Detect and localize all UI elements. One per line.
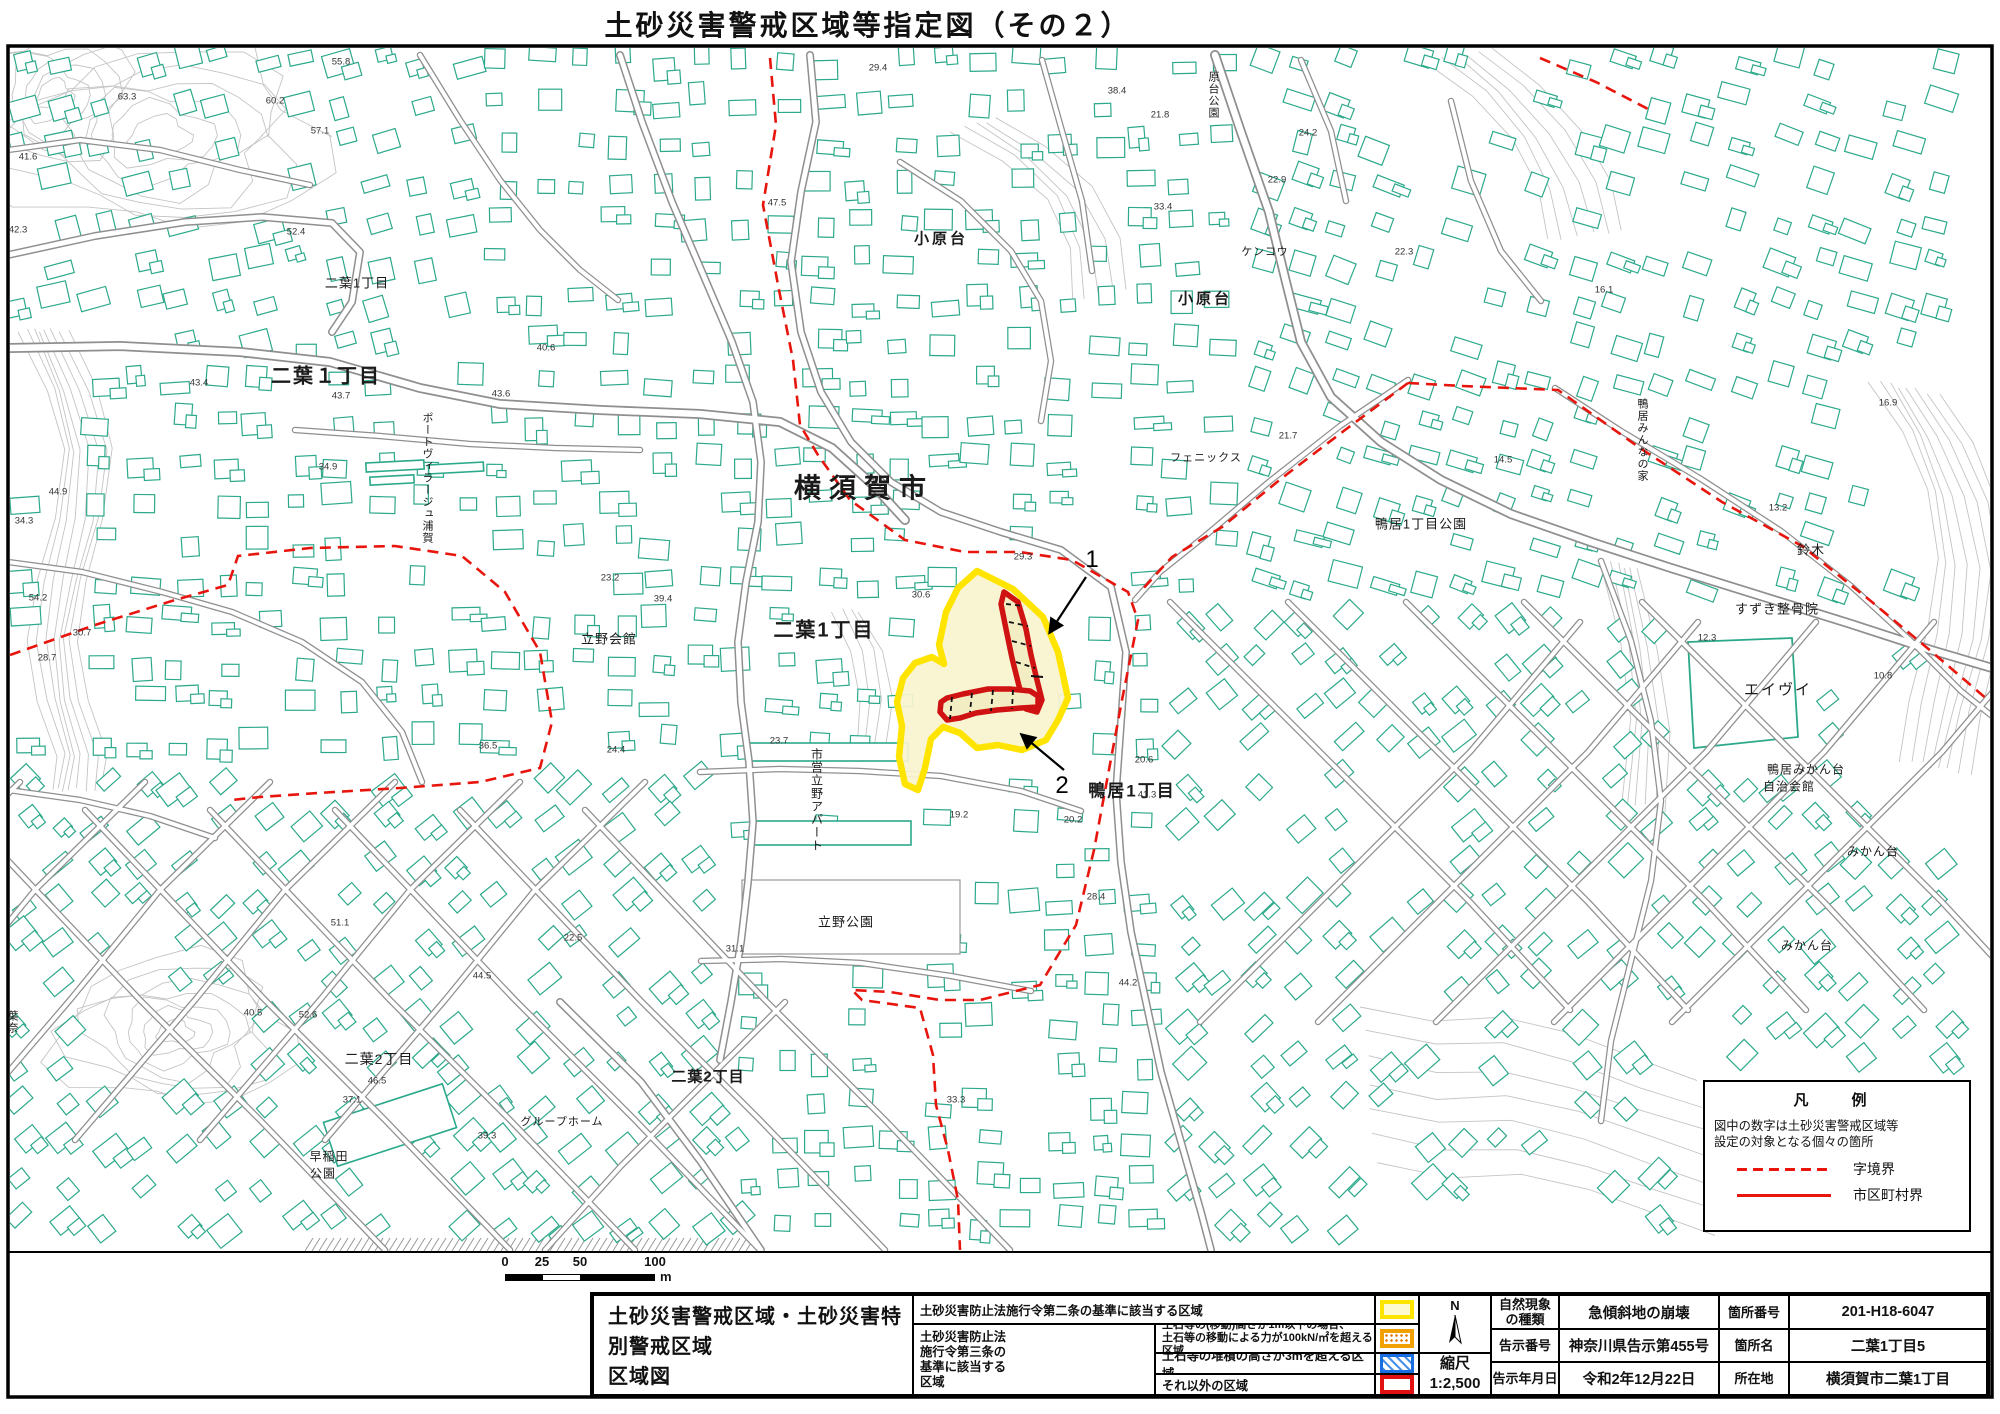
info-label-phenomenon: 自然現象 の種類: [1491, 1295, 1559, 1329]
legend-row2-desc: 土石等の(移動)高さが1m以下の場合、 土石等の移動による力が100kN/㎡を超…: [1155, 1324, 1375, 1353]
warning-area-swatch: [1380, 1300, 1414, 1319]
scale-tick-25: 25: [535, 1254, 549, 1269]
legend-row4-desc: それ以外の区域: [1155, 1374, 1375, 1395]
legend-row1-swatch: [1375, 1295, 1419, 1324]
scale-unit: m: [660, 1269, 672, 1284]
info-value-notice-number: 神奈川県告示第455号: [1559, 1329, 1719, 1362]
title-block-table: 土砂災害警戒区域・土砂災害特別警戒区域 区域図 土砂災害防止法施行令第二条の基準…: [590, 1292, 1990, 1398]
legend-row3-desc: 土石等の堆積の高さが3mを超える区域: [1155, 1353, 1375, 1374]
warning-area-polygon: [897, 571, 1068, 790]
scale-tick-0: 0: [501, 1254, 508, 1269]
scale-bar: 0 25 50 100 m: [497, 1254, 727, 1290]
topographic-map: [0, 0, 2000, 1414]
info-value-site-name: 二葉1丁目5: [1789, 1329, 1987, 1362]
municipal-boundary-line-sample: [1737, 1194, 1831, 1197]
aza-boundary-line-sample: [1737, 1168, 1831, 1171]
scale-bar-rule: [505, 1274, 655, 1281]
deposit-height-swatch: [1380, 1354, 1414, 1373]
info-value-phenomenon: 急傾斜地の崩壊: [1559, 1295, 1719, 1329]
scale-tick-50: 50: [573, 1254, 587, 1269]
legend-note: 図中の数字は土砂災害警戒区域等 設定の対象となる個々の箇所: [1714, 1118, 1963, 1150]
north-cell: N: [1419, 1295, 1491, 1353]
municipal-boundary-label: 市区町村界: [1853, 1185, 1923, 1205]
legend-group-label: 土砂災害防止法 施行令第三条の 基準に該当する 区域: [913, 1324, 1155, 1395]
info-value-notice-date: 令和2年12月22日: [1559, 1362, 1719, 1395]
debris-force-swatch: [1380, 1329, 1414, 1348]
north-arrow-icon: [1444, 1313, 1466, 1347]
doc-title-line1: 土砂災害警戒区域・土砂災害特別警戒区域: [608, 1302, 912, 1362]
aza-boundary-label: 字境界: [1853, 1159, 1895, 1179]
scale-cell: 縮尺 1:2,500: [1419, 1353, 1491, 1395]
map-legend-box: 凡 例 図中の数字は土砂災害警戒区域等 設定の対象となる個々の箇所 字境界 市区…: [1703, 1080, 1971, 1232]
legend-row4-swatch: [1375, 1374, 1419, 1395]
info-label-location: 所在地: [1719, 1362, 1789, 1395]
info-label-notice-number: 告示番号: [1491, 1329, 1559, 1362]
scale-value: 1:2,500: [1430, 1374, 1481, 1394]
legend-title: 凡 例: [1705, 1089, 1969, 1110]
info-value-location: 横須賀市二葉1丁目: [1789, 1362, 1987, 1395]
legend-row2-swatch: [1375, 1324, 1419, 1353]
scale-tick-100: 100: [644, 1254, 666, 1269]
info-label-notice-date: 告示年月日: [1491, 1362, 1559, 1395]
map-canvas: [0, 23, 2000, 1251]
info-value-site-number: 201-H18-6047: [1789, 1295, 1987, 1329]
doc-title-cell: 土砂災害警戒区域・土砂災害特別警戒区域 区域図: [593, 1295, 913, 1395]
map-sheet: 土砂災害警戒区域等指定図（その２） 横須賀市二葉1丁目二葉１丁目二葉1丁目小原台…: [0, 0, 2000, 1414]
page-title: 土砂災害警戒区域等指定図（その２）: [0, 4, 1736, 44]
special-warning-swatch: [1380, 1375, 1414, 1394]
legend-row3-swatch: [1375, 1353, 1419, 1374]
hazard-zones: [897, 571, 1068, 790]
north-label: N: [1450, 1298, 1459, 1313]
scale-label: 縮尺: [1440, 1354, 1470, 1374]
info-label-site-name: 箇所名: [1719, 1329, 1789, 1362]
doc-title-line2: 区域図: [608, 1362, 912, 1392]
info-label-site-number: 箇所番号: [1719, 1295, 1789, 1329]
legend-row1-desc: 土砂災害防止法施行令第二条の基準に該当する区域: [913, 1295, 1375, 1324]
